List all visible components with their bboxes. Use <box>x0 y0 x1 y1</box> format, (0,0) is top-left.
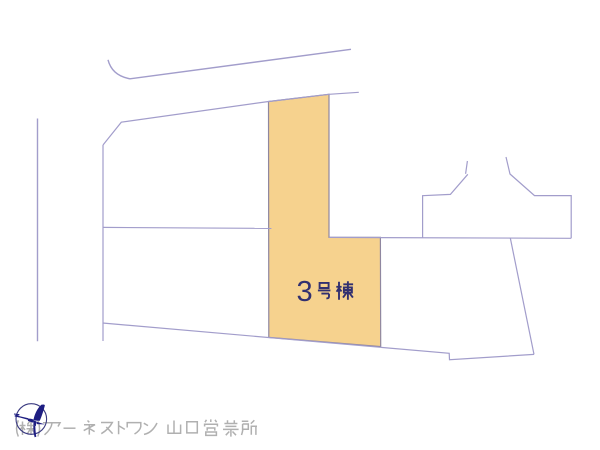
svg-text:3: 3 <box>297 276 313 308</box>
